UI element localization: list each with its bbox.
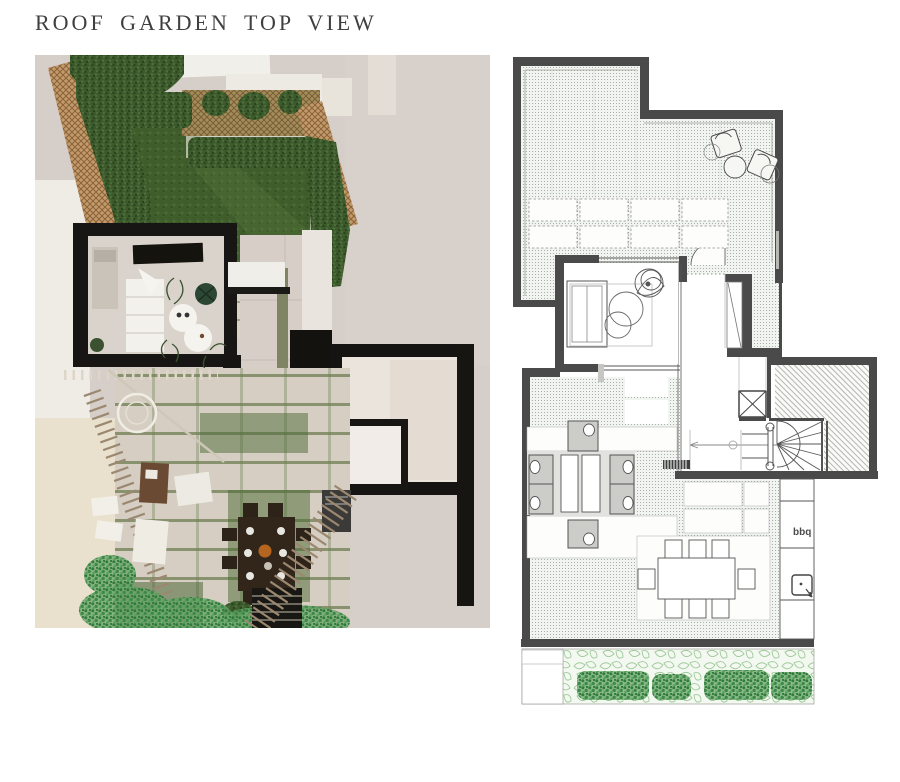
svg-text:ROOF GARDEN TOP VIEW: ROOF GARDEN TOP VIEW — [35, 10, 377, 35]
svg-text:bbq: bbq — [793, 527, 811, 538]
